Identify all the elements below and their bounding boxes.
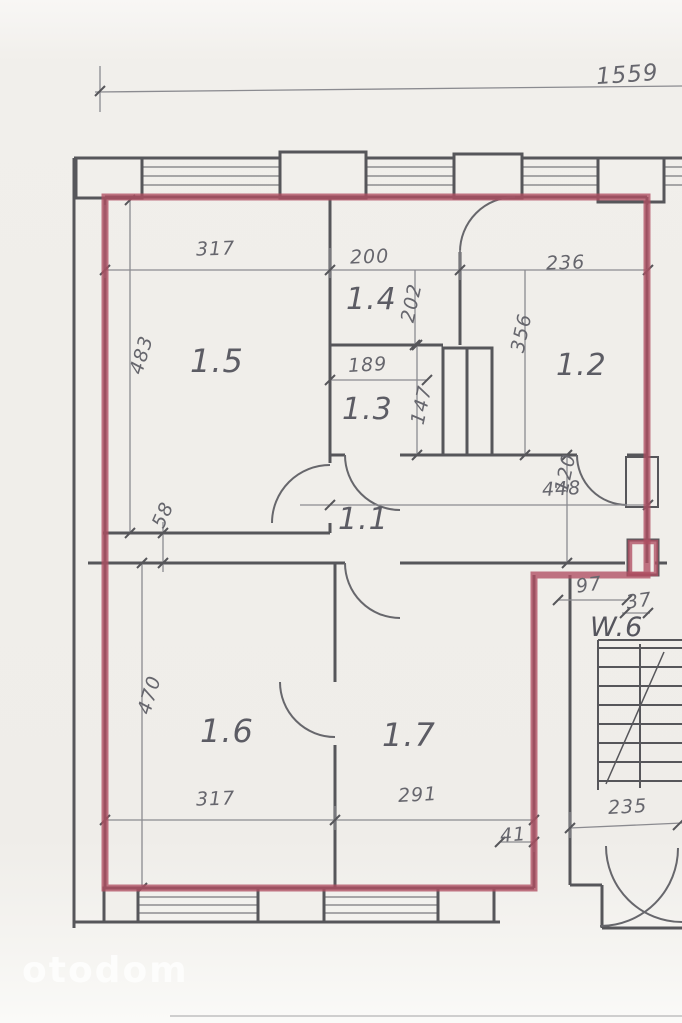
room-label-1-7: 1.7 <box>382 716 436 754</box>
dim-bottom-offset: 41 <box>499 823 527 847</box>
watermark-text: otodom <box>22 950 189 991</box>
dim-room-1-2-width: 236 <box>546 251 586 274</box>
exterior-walls <box>74 158 682 928</box>
dim-overall-width: 1559 <box>595 60 659 90</box>
room-label-1-6: 1.6 <box>200 712 254 750</box>
dim-room-1-3-width: 189 <box>347 353 387 377</box>
dim-hall-width: 448 <box>541 477 581 501</box>
room-label-1-2: 1.2 <box>556 348 607 383</box>
floor-plan-page: 1559 317 200 236 202 356 189 147 483 120… <box>0 0 682 1023</box>
room-label-1-4: 1.4 <box>346 282 397 317</box>
dim-room-1-4-width: 200 <box>350 245 390 268</box>
dim-entry-width: 97 <box>575 572 604 597</box>
dim-entry-door-width: 37 <box>625 588 654 613</box>
dim-room-1-5-width: 317 <box>196 237 236 260</box>
dimension-ticks <box>95 86 682 893</box>
stairwell-label: W.6 <box>590 612 643 643</box>
window-glazing-lines <box>104 167 682 913</box>
staircase <box>598 640 682 790</box>
dim-stair-width: 235 <box>607 795 647 819</box>
room-label-1-5: 1.5 <box>190 342 244 380</box>
dim-room-1-7-width: 291 <box>397 783 437 807</box>
dim-room-1-6-width: 317 <box>196 787 236 810</box>
room-label-1-3: 1.3 <box>342 392 393 427</box>
dimension-lines <box>95 66 682 888</box>
room-label-1-1: 1.1 <box>338 502 389 537</box>
